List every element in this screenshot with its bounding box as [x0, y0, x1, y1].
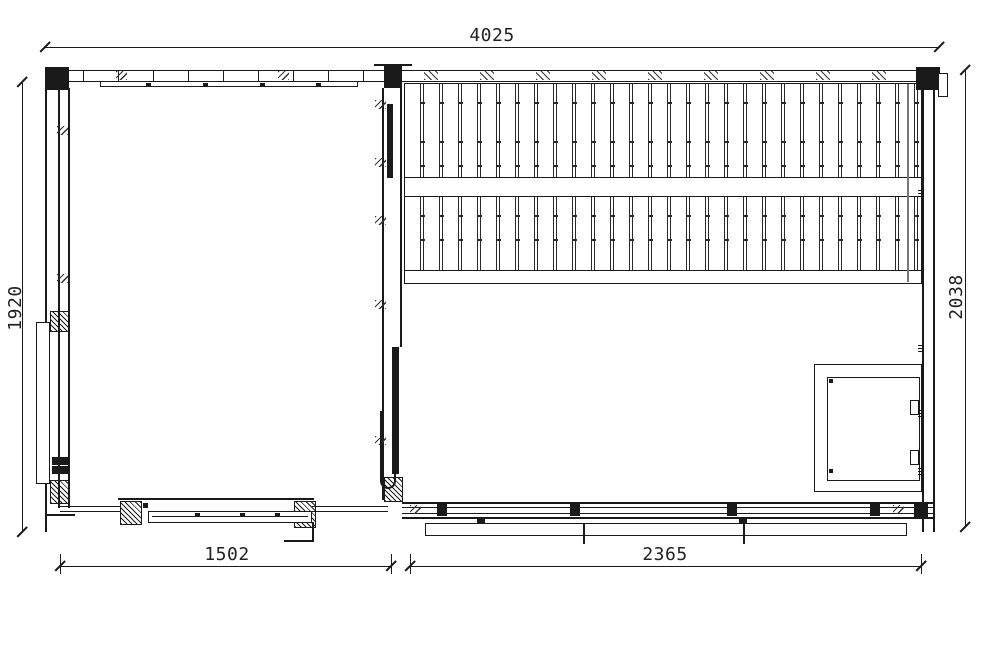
- dimension-label-overall-width: 4025: [462, 27, 522, 45]
- wall-hatch-mark: [424, 71, 438, 80]
- bottom-wall-line: [60, 511, 120, 512]
- track-rail-end: [100, 82, 101, 87]
- heater-corner-mark: [829, 469, 833, 473]
- rail-clip: [260, 83, 265, 87]
- wall-hatch-mark: [480, 71, 494, 80]
- bench-front-rail: [404, 177, 922, 197]
- corner-ledge: [45, 514, 75, 516]
- corner-post-top-right: [916, 67, 940, 90]
- door-post: [50, 311, 69, 332]
- bottom-wall-line: [312, 511, 388, 512]
- right-wall: [933, 70, 935, 532]
- wall-divider: [258, 70, 259, 82]
- wall-hatch-mark: [648, 71, 662, 80]
- door-post: [50, 480, 69, 504]
- glass-symbol: [57, 274, 68, 283]
- wall-hatch-mark: [536, 71, 550, 80]
- bottom-wall-glazing: [402, 513, 935, 514]
- wall-joint-mark: [918, 345, 922, 353]
- glass-symbol: [375, 300, 386, 309]
- door-post: [384, 477, 403, 502]
- door-handle: [284, 540, 314, 542]
- wall-hatch-mark: [816, 71, 830, 80]
- mullion-post: [870, 504, 880, 516]
- left-wall-glass: [68, 88, 70, 508]
- dimension-label-left-height: 1920: [7, 278, 25, 338]
- mullion-post: [570, 504, 580, 516]
- door-handle: [312, 522, 314, 542]
- bottom-wall-glazing: [402, 507, 935, 508]
- mullion-post: [727, 504, 737, 516]
- sliding-panel-outside: [36, 322, 50, 484]
- dimension-label-right-height: 2038: [948, 267, 966, 327]
- rail-clip: [316, 83, 321, 87]
- wall-divider: [363, 70, 364, 82]
- glass-symbol: [893, 505, 904, 514]
- wall-divider: [83, 70, 84, 82]
- track-joint: [743, 523, 745, 544]
- dimension-line: [45, 47, 940, 48]
- door-post: [120, 501, 142, 525]
- bottom-wall-line: [312, 506, 388, 507]
- wall-hatch-mark: [592, 71, 606, 80]
- corner-trim: [938, 73, 948, 97]
- slat-tick-row: [406, 215, 920, 217]
- glass-symbol: [278, 71, 289, 80]
- floor-plan-canvas: 4025 1920 2038 1502 2365: [0, 0, 1000, 646]
- wall-joint-mark: [918, 190, 922, 198]
- latch-block: [143, 503, 148, 508]
- backrest-board: [387, 104, 393, 178]
- rail-clip: [203, 83, 208, 87]
- dimension-label-left-room-width: 1502: [197, 546, 257, 564]
- track-rail-end: [357, 82, 358, 87]
- corner-post-top-left: [45, 67, 69, 90]
- wall-divider: [153, 70, 154, 82]
- heater-corner-mark: [829, 379, 833, 383]
- exterior-deck-track: [425, 523, 907, 536]
- mullion-post: [437, 504, 447, 516]
- wall-hatch-mark: [760, 71, 774, 80]
- glass-symbol: [57, 126, 68, 135]
- dimension-line: [410, 566, 922, 567]
- rail-clip: [146, 83, 151, 87]
- wall-hatch-mark: [872, 71, 886, 80]
- heater-body: [827, 377, 920, 481]
- dimension-line: [60, 566, 392, 567]
- corner-post-bottom-right: [914, 503, 928, 518]
- left-wall-glass: [58, 88, 60, 508]
- wall-hatch-mark: [704, 71, 718, 80]
- bench-base-rail: [404, 270, 922, 284]
- slat-tick-row: [406, 141, 920, 143]
- glass-symbol: [375, 216, 386, 225]
- slat-tick-row: [406, 239, 920, 241]
- bottom-wall-line: [402, 502, 935, 504]
- sliding-door-panel: [148, 511, 312, 523]
- heater-bracket: [910, 400, 919, 415]
- door-frame-head: [118, 498, 314, 500]
- upper-bench-slats: [404, 83, 922, 178]
- heater-bracket: [910, 450, 919, 465]
- slat-tick-row: [406, 165, 920, 167]
- right-wall: [922, 70, 924, 532]
- wall-divider: [188, 70, 189, 82]
- bench-end-board: [907, 84, 909, 282]
- glass-symbol: [375, 100, 386, 109]
- glass-symbol: [410, 505, 421, 514]
- dimension-label-right-room-width: 2365: [635, 546, 695, 564]
- rail-clip: [195, 513, 200, 517]
- wall-divider: [293, 70, 294, 82]
- rail-clip: [240, 513, 245, 517]
- wall-divider: [223, 70, 224, 82]
- lower-bench-slats: [404, 196, 922, 272]
- rail-clip: [275, 513, 280, 517]
- door-stop-block: [52, 466, 68, 474]
- door-panel-glazing: [152, 516, 308, 517]
- wall-divider: [328, 70, 329, 82]
- slat-tick-row: [406, 102, 920, 104]
- glass-symbol: [116, 71, 127, 80]
- door-stop-block: [52, 457, 68, 465]
- glass-symbol: [375, 158, 386, 167]
- partition-glass: [400, 88, 402, 347]
- bottom-wall-line: [60, 506, 120, 507]
- track-joint: [583, 523, 585, 544]
